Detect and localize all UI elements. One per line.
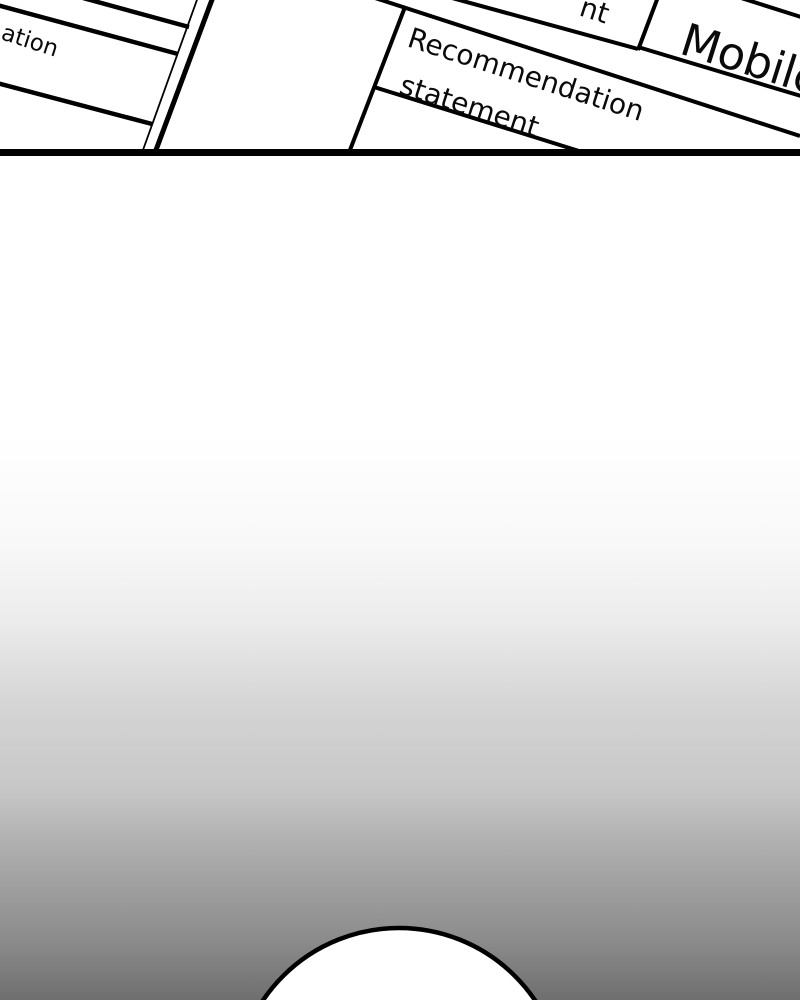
gradient-background <box>0 156 800 1000</box>
comic-panel: ation Recommendation statement nt Mobile… <box>0 0 800 1000</box>
comic-panel-canvas: ation Recommendation statement nt Mobile… <box>0 0 800 1000</box>
